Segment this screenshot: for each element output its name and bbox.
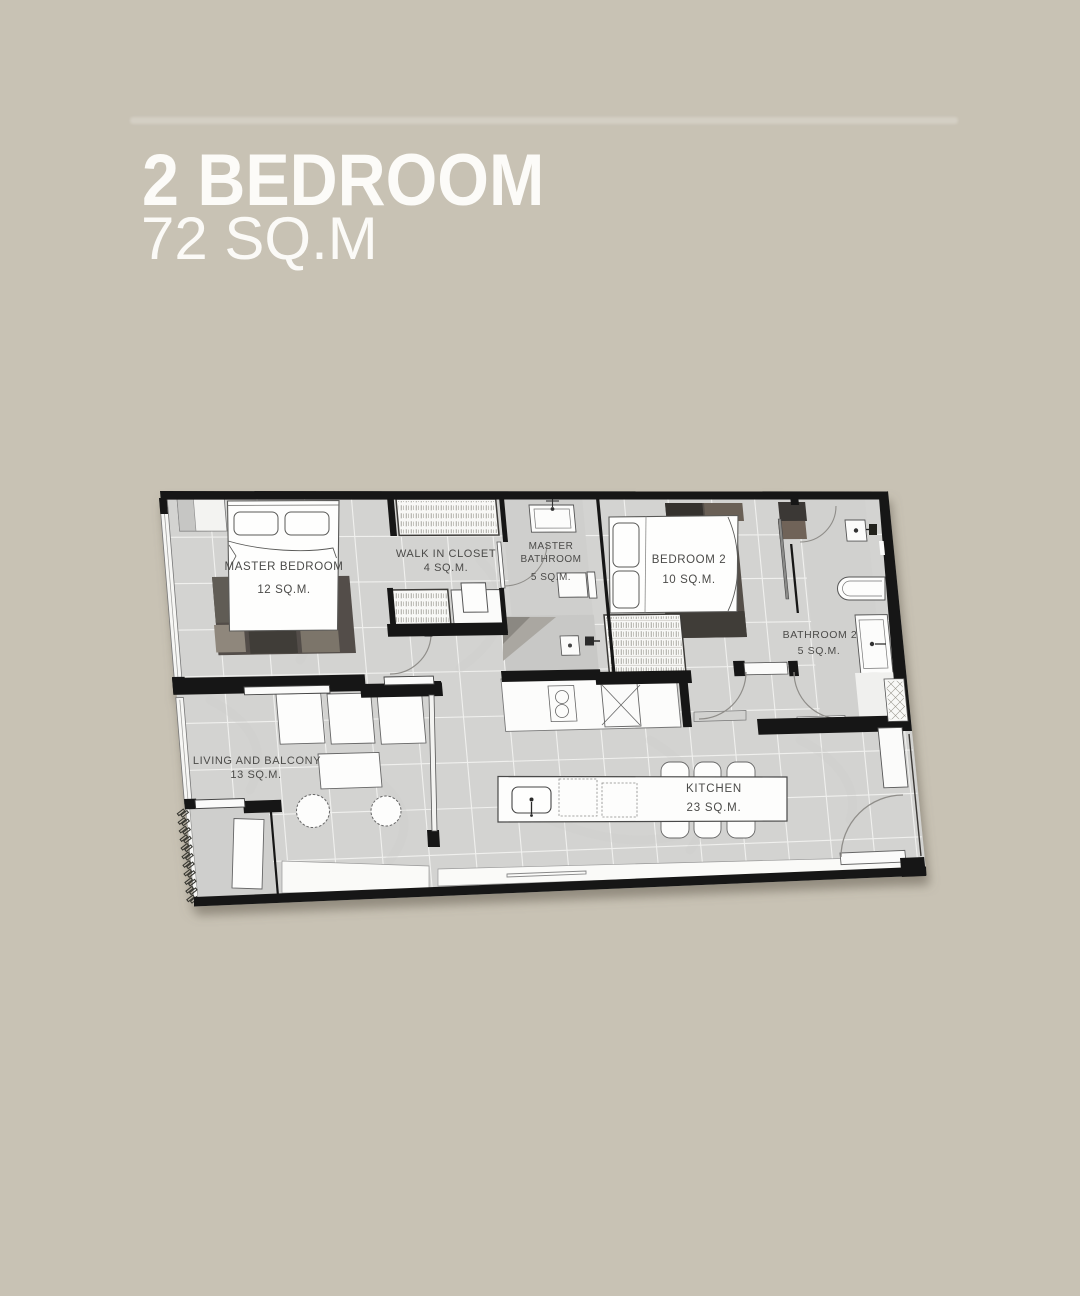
- svg-text:10 SQ.M.: 10 SQ.M.: [662, 574, 715, 586]
- svg-text:13 SQ.M.: 13 SQ.M.: [230, 769, 281, 781]
- svg-text:BATHROOM: BATHROOM: [520, 554, 581, 565]
- svg-text:5 SQ.M.: 5 SQ.M.: [531, 572, 571, 583]
- svg-text:LIVING AND BALCONY: LIVING AND BALCONY: [193, 755, 321, 767]
- svg-text:MASTER BEDROOM: MASTER BEDROOM: [225, 561, 344, 573]
- svg-text:5 SQ.M.: 5 SQ.M.: [798, 645, 841, 657]
- svg-text:12 SQ.M.: 12 SQ.M.: [257, 584, 310, 596]
- svg-text:KITCHEN: KITCHEN: [686, 783, 742, 795]
- svg-text:BATHROOM 2: BATHROOM 2: [783, 629, 858, 641]
- svg-text:WALK IN CLOSET: WALK IN CLOSET: [396, 548, 496, 560]
- svg-text:23 SQ.M.: 23 SQ.M.: [687, 802, 742, 814]
- svg-text:MASTER: MASTER: [529, 541, 574, 552]
- svg-text:4 SQ.M.: 4 SQ.M.: [424, 562, 469, 574]
- svg-text:BEDROOM 2: BEDROOM 2: [652, 554, 726, 566]
